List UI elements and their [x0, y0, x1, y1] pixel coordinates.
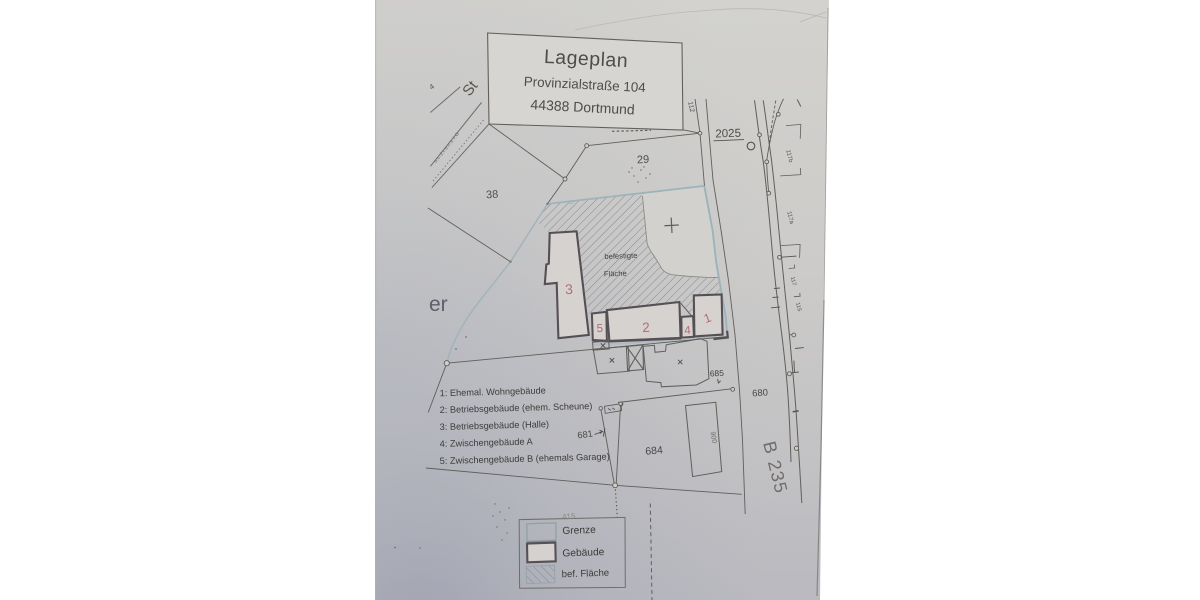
svg-text:38: 38 — [486, 189, 499, 202]
svg-text:Lageplan: Lageplan — [543, 46, 628, 72]
svg-text:681: 681 — [577, 428, 594, 440]
svg-text:680: 680 — [752, 387, 769, 399]
svg-text:Fläche: Fläche — [604, 269, 627, 279]
svg-text:5: 5 — [596, 323, 603, 335]
svg-text:er: er — [429, 293, 448, 316]
svg-text:4: 4 — [684, 325, 692, 337]
svg-text:29: 29 — [637, 154, 650, 167]
svg-text:befestigte: befestigte — [604, 251, 637, 261]
svg-text:685: 685 — [710, 368, 725, 379]
svg-text:2: 2 — [642, 320, 650, 335]
svg-text:684: 684 — [645, 444, 664, 457]
svg-text:2025: 2025 — [715, 128, 741, 141]
svg-text:Gebäude: Gebäude — [562, 547, 605, 559]
svg-text:Grenze: Grenze — [562, 525, 596, 537]
svg-text:415: 415 — [562, 511, 577, 521]
svg-text:bef. Fläche: bef. Fläche — [562, 568, 610, 581]
svg-text:3: 3 — [565, 281, 574, 297]
